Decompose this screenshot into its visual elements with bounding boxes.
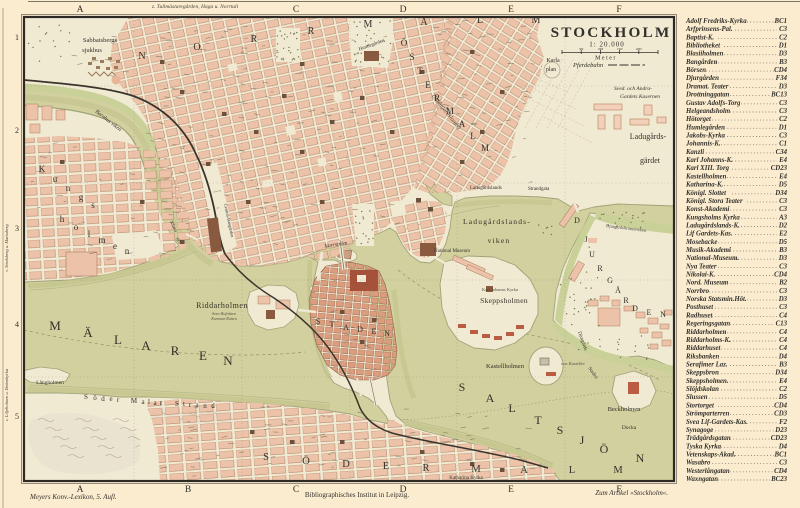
svg-text:National Museum: National Museum [434,249,470,254]
svg-text:gärdet: gärdet [640,156,661,165]
svg-text:D4: D4 [778,443,788,450]
svg-text:E: E [508,485,514,495]
svg-text:S: S [263,452,269,463]
svg-text:D2: D2 [778,223,788,230]
svg-text:C2: C2 [779,34,788,41]
svg-text:A: A [343,323,349,332]
svg-text:Posthuset: Posthuset [686,304,714,311]
svg-text:Slussen: Slussen [686,394,708,401]
svg-text:m: m [98,235,105,245]
svg-text:Arfprinsens-Pal.: Arfprinsens-Pal. [685,26,733,33]
svg-text:Skeppsholmen: Skeppsholmen [480,296,528,305]
svg-text:L: L [470,131,476,141]
svg-text:Skeppsholmen.: Skeppsholmen. [686,378,729,385]
svg-text:Gustav Adolfs-Torg: Gustav Adolfs-Torg [686,100,741,107]
svg-text:Blasiiholmen: Blasiiholmen [685,51,724,58]
svg-text:C3: C3 [779,206,788,213]
svg-text:g: g [79,192,84,202]
svg-text:D34: D34 [774,370,787,377]
svg-text:Musik-Akademi: Musik-Akademi [685,247,731,254]
svg-text:Beckholmen: Beckholmen [608,406,642,413]
svg-text:C34: C34 [776,149,788,156]
svg-text:B3: B3 [778,247,788,254]
svg-text:h: h [60,214,65,224]
svg-text:n: n [203,402,207,410]
svg-text:Jakobs-Kyrka: Jakobs-Kyrka [685,133,725,140]
svg-text:C1: C1 [779,141,787,148]
svg-text:E4: E4 [778,157,788,164]
svg-text:CD3: CD3 [774,411,787,418]
svg-text:J: J [584,235,587,244]
svg-text:Helgeandsholm: Helgeandsholm [685,108,730,115]
svg-text:D5: D5 [778,394,788,401]
svg-text:Gardets Kasernen: Gardets Kasernen [620,94,660,100]
svg-text:S: S [84,393,88,401]
svg-text:Ö: Ö [600,442,609,456]
svg-text:l: l [148,398,150,406]
svg-text:Waxngatan: Waxngatan [686,476,718,483]
svg-text:Docka: Docka [622,425,637,431]
svg-text:Westerlångatan: Westerlångatan [686,468,730,475]
svg-text:Meter: Meter [595,56,617,62]
svg-text:z. Liljeholmen u. Brännkyrka: z. Liljeholmen u. Brännkyrka [4,368,9,422]
svg-text:D: D [632,304,638,313]
svg-text:3: 3 [15,224,19,233]
svg-text:sjukhus: sjukhus [82,47,102,54]
svg-text:C4: C4 [779,345,788,352]
svg-text:J: J [580,433,585,447]
svg-text:D3: D3 [778,296,788,303]
svg-text:Ö: Ö [401,38,408,48]
svg-text:R: R [308,26,315,37]
svg-text:E2: E2 [778,231,788,238]
svg-text:C3: C3 [779,460,788,467]
svg-text:viken: viken [488,236,511,245]
svg-text:s: s [91,200,95,210]
svg-text:Riddarholmen: Riddarholmen [685,329,727,336]
svg-text:C3: C3 [779,198,788,205]
svg-text:D3: D3 [778,83,788,90]
svg-text:C2: C2 [779,386,788,393]
svg-text:Trädgårdsgatan: Trädgårdsgatan [686,435,731,442]
svg-text:O: O [193,42,200,53]
svg-text:z. Tullmästaregården, Haga u.: z. Tullmästaregården, Haga u. Norrtull [151,3,239,10]
svg-text:R: R [251,34,258,45]
svg-text:Långholmen: Långholmen [36,379,64,386]
svg-text:E: E [372,327,377,336]
svg-text:A: A [520,465,528,476]
svg-text:C3: C3 [779,133,788,140]
svg-text:Sabbatsbergs: Sabbatsbergs [83,37,118,44]
svg-text:e: e [109,395,112,403]
svg-text:Regeringsgatan: Regeringsgatan [685,321,730,328]
svg-text:n: n [66,183,71,193]
svg-text:C3: C3 [779,288,788,295]
svg-text:Nikolai-K.: Nikolai-K. [685,272,716,279]
svg-text:Zum Artikel »Stockholm«.: Zum Artikel »Stockholm«. [595,489,668,497]
svg-text:Johannis-K.: Johannis-K. [685,141,721,148]
svg-text:Nord. Museum: Nord. Museum [685,280,728,287]
svg-text:A: A [141,338,151,353]
svg-text:Kanzli: Kanzli [685,149,704,156]
svg-text:Baptist-K.: Baptist-K. [685,34,714,41]
svg-text:BC23: BC23 [770,476,787,483]
svg-text:n: n [125,246,130,256]
svg-text:L: L [114,332,122,347]
svg-text:F34: F34 [776,75,788,82]
svg-text:Kastellholmen: Kastellholmen [685,173,727,180]
svg-text:BC1: BC1 [774,452,787,459]
svg-text:500: 500 [579,48,584,51]
svg-text:B3: B3 [778,362,788,369]
svg-text:Dramat. Teater: Dramat. Teater [685,83,729,90]
svg-text:Drottninggatan: Drottninggatan [685,92,730,99]
svg-text:C2: C2 [779,116,788,123]
svg-text:4: 4 [15,320,19,329]
svg-text:2: 2 [15,126,19,135]
svg-text:Sved. och Andra-: Sved. och Andra- [614,86,652,92]
svg-text:Bibliographisches Institut in: Bibliographisches Institut in Leipzig. [305,491,409,499]
svg-text:S: S [459,380,466,394]
svg-text:M: M [481,143,489,153]
svg-text:1000: 1000 [598,48,604,51]
svg-text:E: E [383,461,389,472]
svg-text:N: N [384,329,390,338]
svg-text:A: A [420,17,428,28]
svg-text:u: u [53,174,58,184]
svg-text:R: R [597,264,603,273]
svg-text:1500: 1500 [617,48,623,51]
svg-text:Ladugårdslands: Ladugårdslands [470,185,502,191]
svg-text:CD4: CD4 [774,272,787,279]
svg-text:Norrbro: Norrbro [685,288,710,295]
svg-text:S: S [409,52,414,62]
svg-text:Ö: Ö [302,455,310,467]
svg-text:Kastellholmen: Kastellholmen [486,363,525,370]
svg-text:BC13: BC13 [770,92,787,99]
svg-text:Slöjdskolan: Slöjdskolan [686,386,719,393]
svg-text:M: M [49,318,61,333]
svg-text:2000: 2000 [636,48,642,51]
svg-text:C4: C4 [779,312,788,319]
svg-text:D: D [357,325,363,334]
svg-text:S: S [557,423,564,437]
svg-text:D5: D5 [778,239,788,246]
svg-text:R: R [171,343,180,358]
svg-text:Ladugårds-: Ladugårds- [630,132,667,141]
svg-text:T: T [534,413,542,427]
svg-text:A3: A3 [778,214,788,221]
svg-text:L: L [569,465,575,476]
svg-text:Mosebacke: Mosebacke [685,239,717,246]
svg-text:T: T [417,66,423,76]
svg-text:D1: D1 [778,124,787,131]
svg-text:CD4: CD4 [774,67,787,74]
svg-text:Hötorget: Hötorget [685,116,712,123]
svg-text:F2: F2 [779,419,788,426]
svg-text:A: A [77,5,84,15]
svg-text:C13: C13 [776,321,788,328]
svg-text:CD4: CD4 [774,468,787,475]
svg-text:t: t [183,400,185,408]
svg-text:Kammar Rätten: Kammar Rätten [210,316,236,321]
svg-text:M: M [364,19,373,30]
svg-text:Riddarholmen: Riddarholmen [196,301,248,310]
svg-text:G: G [607,276,613,285]
svg-text:Meyers Konv.-Lexikon, 5. Aufl.: Meyers Konv.-Lexikon, 5. Aufl. [29,493,117,501]
svg-text:CD23: CD23 [771,165,788,172]
svg-text:Norska Statsmin.Höt.: Norska Statsmin.Höt. [685,296,747,303]
svg-text:A: A [486,391,495,405]
svg-text:E4: E4 [778,378,788,385]
svg-text:E: E [508,5,514,15]
svg-text:1: 1 [15,33,19,42]
svg-text:Bangården: Bangården [685,59,718,66]
svg-text:S: S [175,400,179,408]
svg-text:Wasabro: Wasabro [686,460,711,467]
svg-text:Synagoge: Synagoge [686,427,713,434]
svg-text:Pferdebahn: Pferdebahn [572,62,603,69]
svg-text:D3: D3 [778,51,788,58]
svg-text:Nya Teater: Nya Teater [685,263,717,270]
svg-text:CD4: CD4 [774,402,787,409]
svg-text:M: M [613,465,623,476]
svg-text:Königl. Slottet: Königl. Slottet [685,190,727,197]
svg-text:D4: D4 [778,353,788,360]
svg-text:C3: C3 [779,108,788,115]
svg-text:Å: Å [615,286,621,295]
svg-text:C4: C4 [779,337,788,344]
svg-text:Strandgata: Strandgata [528,187,550,192]
svg-text:C: C [293,485,299,495]
svg-text:Karl Johanns Kyrka: Karl Johanns Kyrka [482,287,518,292]
svg-text:Bibliotheket: Bibliotheket [685,43,721,50]
svg-text:B3: B3 [778,59,788,66]
svg-text:D: D [342,459,350,470]
svg-text:D: D [574,216,580,225]
svg-text:Radhuset: Radhuset [685,312,714,319]
svg-text:M: M [471,464,481,475]
svg-text:C4: C4 [779,329,788,336]
svg-text:B: B [185,485,191,495]
svg-text:ö: ö [93,394,97,402]
svg-text:Adolf Fredriks-Kyrka: Adolf Fredriks-Kyrka [685,18,747,25]
svg-text:Riddarhuset: Riddarhuset [685,345,721,352]
svg-text:Strömparterren: Strömparterren [686,411,730,418]
svg-text:E: E [647,308,652,317]
svg-text:Serafimer Laz.: Serafimer Laz. [686,362,728,369]
svg-text:Riksbanken: Riksbanken [685,353,719,360]
svg-text:Ladugårdslands-K.: Ladugårdslands-K. [685,223,740,230]
svg-text:C: C [293,5,299,15]
svg-text:Lif Gardets-Kas.: Lif Gardets-Kas. [685,231,733,238]
svg-text:Tyska Kyrka: Tyska Kyrka [686,443,722,450]
svg-text:D1: D1 [778,43,787,50]
svg-text:BC1: BC1 [774,18,787,25]
svg-text:Konst-Akademi: Konst-Akademi [685,206,730,213]
svg-text:N: N [660,310,666,319]
svg-text:C3: C3 [779,304,788,311]
svg-text:D23: D23 [774,427,787,434]
svg-text:D: D [400,5,407,15]
svg-text:Humlegården: Humlegården [685,124,725,131]
svg-text:5: 5 [15,412,19,421]
svg-text:Karla: Karla [546,58,560,64]
svg-text:d: d [211,402,215,410]
svg-text:R: R [623,296,629,305]
svg-text:Katharina-K.: Katharina-K. [685,182,724,189]
svg-text:K: K [39,164,46,174]
svg-text:Ladugårdslands-: Ladugårdslands- [463,217,531,226]
svg-text:von Kastellet: von Kastellet [561,361,585,366]
svg-text:e: e [113,241,117,251]
svg-text:Vetenskaps-Akad.: Vetenskaps-Akad. [686,452,736,459]
svg-text:National-Museum.: National-Museum. [685,255,739,262]
svg-text:Svea Lif-Gardets-Kas.: Svea Lif-Gardets-Kas. [686,419,748,426]
svg-text:Börsen: Börsen [685,67,706,74]
svg-text:C3: C3 [779,26,788,33]
svg-text:E4: E4 [778,173,788,180]
svg-text:F: F [616,5,621,15]
svg-text:Ä: Ä [83,325,93,340]
svg-text:D5: D5 [778,182,788,189]
svg-text:N: N [223,353,233,368]
svg-text:Königl. Stora Teater: Königl. Stora Teater [685,198,743,205]
svg-text:Kungsholms Kyrka: Kungsholms Kyrka [685,214,740,221]
svg-text:B2: B2 [778,280,788,287]
svg-text:M: M [131,397,138,405]
svg-text:S: S [316,317,320,326]
svg-text:Skeppsbron: Skeppsbron [686,370,719,377]
svg-text:STOCKHOLM: STOCKHOLM [551,24,672,41]
svg-text:D3: D3 [778,255,788,262]
svg-text:CD23: CD23 [771,435,788,442]
svg-text:Riddarholms-K.: Riddarholms-K. [685,337,731,344]
svg-text:R: R [422,463,429,474]
svg-text:L: L [508,401,515,415]
svg-text:C3: C3 [779,100,788,107]
svg-text:Stortorget: Stortorget [686,402,715,409]
svg-text:plan: plan [546,67,556,73]
svg-text:d: d [101,395,105,403]
svg-text:Karl XIII. Torg: Karl XIII. Torg [685,165,730,172]
svg-text:Djurgården: Djurgården [685,75,719,82]
svg-text:N: N [636,451,645,465]
svg-text:Karl Johanns-K.: Karl Johanns-K. [685,157,733,164]
svg-text:D34: D34 [774,190,787,197]
svg-text:v. Stralsberg u. Mariaberg: v. Stralsberg u. Mariaberg [4,224,9,272]
svg-text:N: N [138,51,145,62]
svg-text:E: E [199,348,207,363]
svg-text:U: U [589,250,595,259]
svg-text:E: E [425,80,431,90]
svg-text:o: o [74,222,79,232]
svg-text:T: T [330,320,335,329]
svg-text:C3: C3 [779,263,788,270]
